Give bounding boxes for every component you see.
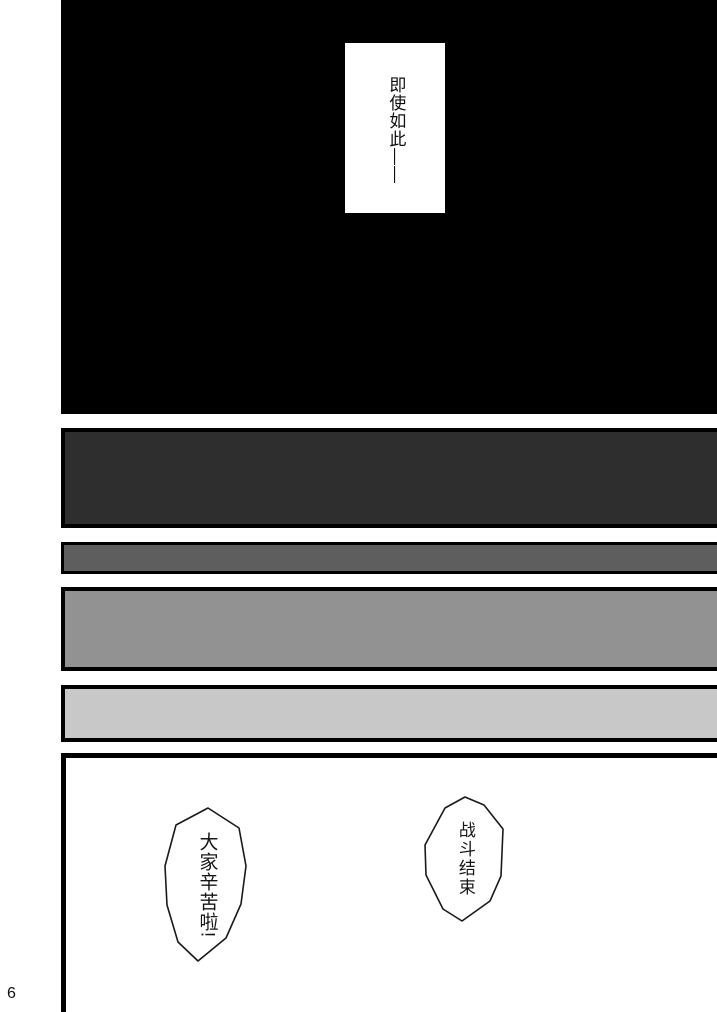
panel-mid-gray — [61, 587, 717, 671]
panel-top-black: 即使如此—— — [61, 0, 717, 414]
narration-box: 即使如此—— — [345, 43, 445, 213]
bar-medium-gray — [61, 542, 717, 574]
speech-bubble-battle-text: 战斗结束 — [455, 821, 474, 897]
speech-bubble-thanks-text: 大家辛苦啦! — [196, 831, 217, 937]
speech-bubble-battle: 战斗结束 — [424, 796, 505, 922]
bar-light-gray — [61, 685, 717, 742]
speech-bubble-thanks: 大家辛苦啦! — [164, 806, 248, 963]
page-number: 6 — [7, 985, 16, 1003]
panel-bottom-white — [61, 753, 717, 1012]
panel-dark-gray — [61, 428, 717, 528]
narration-text: 即使如此—— — [386, 76, 405, 213]
manga-page: 即使如此—— 战斗结束 大家辛苦啦! 6 — [0, 0, 717, 1012]
